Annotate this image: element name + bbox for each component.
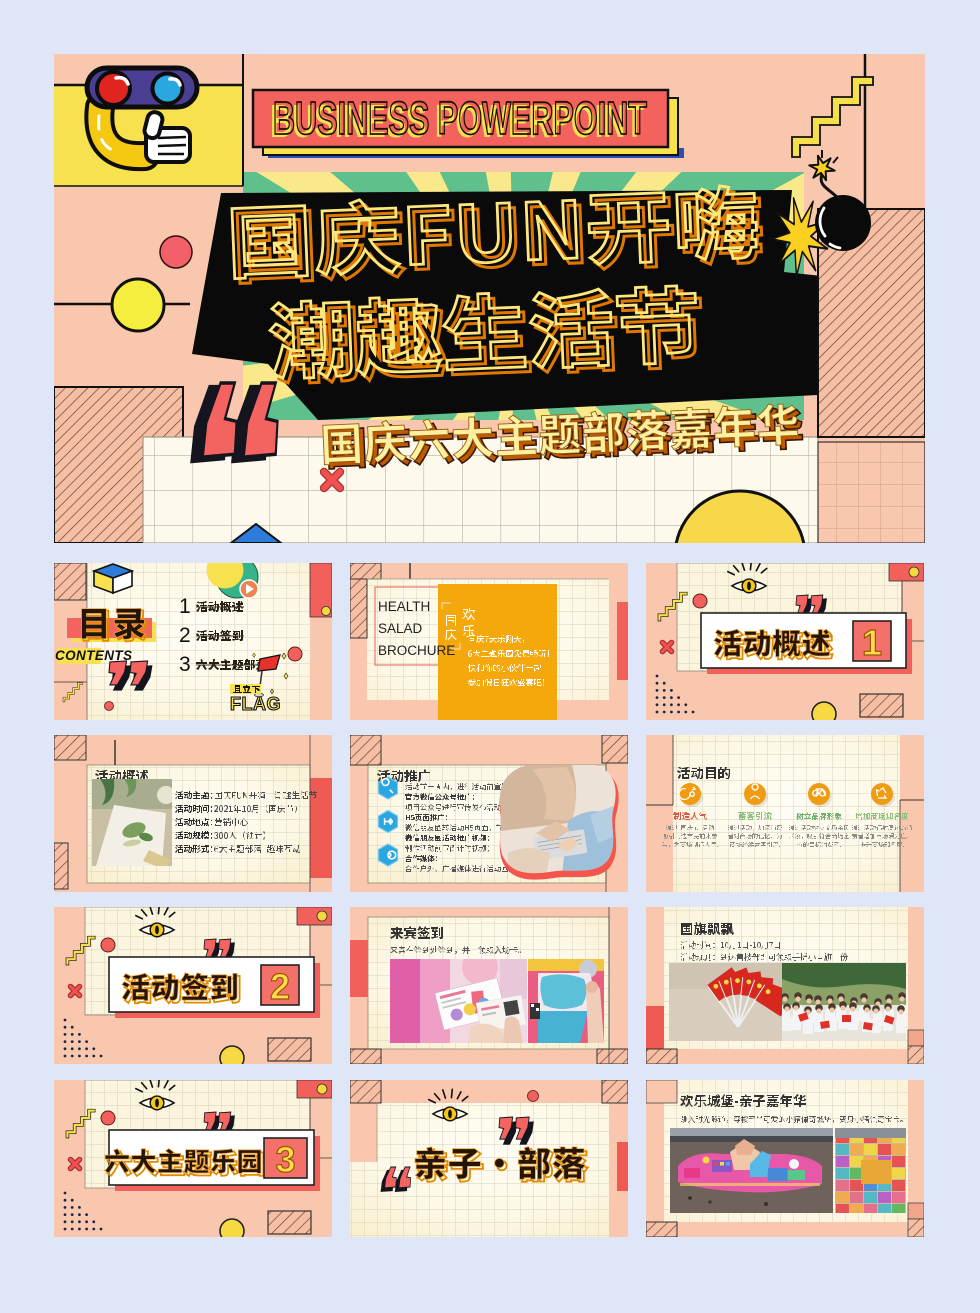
svg-text:1: 1 [862, 622, 882, 663]
svg-text:BUSINESS POWERPOINT: BUSINESS POWERPOINT [273, 92, 647, 144]
svg-text:3: 3 [275, 1139, 295, 1180]
svg-text:CONTENTS: CONTENTS [55, 648, 132, 663]
svg-text:1: 1 [179, 595, 191, 618]
svg-text:FLAG: FLAG [230, 694, 281, 714]
svg-text:3: 3 [179, 653, 191, 676]
svg-text:BROCHURE: BROCHURE [378, 643, 455, 658]
svg-text:SALAD: SALAD [378, 621, 423, 636]
svg-text:HEALTH: HEALTH [378, 599, 430, 614]
svg-text:2: 2 [270, 966, 290, 1007]
svg-text:2: 2 [179, 624, 191, 647]
